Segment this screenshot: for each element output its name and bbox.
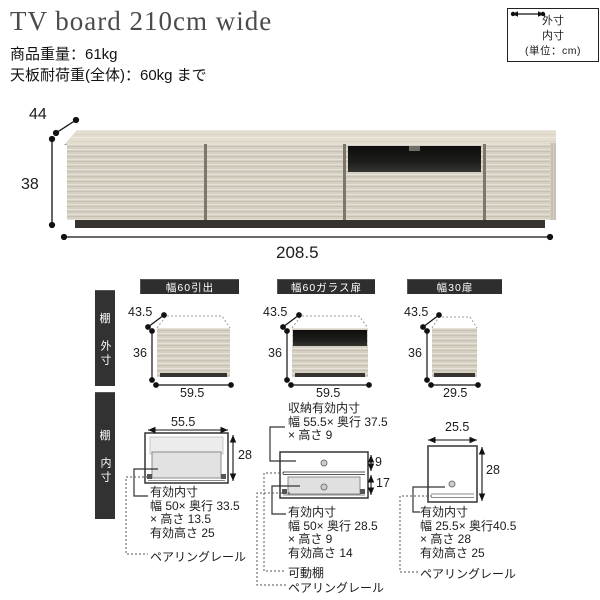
glass-door-latch <box>409 146 420 151</box>
diagram2-rail-label: ペアリングレール <box>288 579 384 596</box>
module2-top-outline <box>292 316 368 328</box>
diagram2-notes: 有効内寸 幅 50× 奥行 28.5 × 高さ 9 有効高さ 14 <box>288 506 378 560</box>
note-line: 有効内寸 <box>150 486 240 500</box>
diagram2-leader-shelf <box>264 473 286 571</box>
bar-inner-label: 内寸 <box>97 457 113 485</box>
diagram3-rail-label: ペアリングレール <box>420 565 516 582</box>
rail-mark <box>147 474 152 479</box>
module2-glass <box>293 330 367 346</box>
module2-base <box>295 373 365 377</box>
tvboard-side-panel <box>550 143 556 220</box>
module3-height: 36 <box>408 346 422 360</box>
module3-top-outline <box>432 317 477 328</box>
sidebar-shelf-inner: 棚 内寸 <box>95 392 115 519</box>
product-dimension-sheet: TV board 210cm wide 商品重量：61kg 天板耐荷重(全体)：… <box>0 0 600 600</box>
legend-unit: (単位：cm) <box>525 43 581 58</box>
cam-screw-icon <box>321 460 327 466</box>
diagram2-drawer-box <box>288 477 360 494</box>
module1-outer-body <box>157 328 230 377</box>
module3-base <box>434 373 475 377</box>
note-line: 有効内寸 <box>288 506 378 520</box>
diagram3-inner-height: 28 <box>486 463 500 477</box>
legend-outer-row: 外寸 <box>542 13 564 27</box>
product-weight: 商品重量：61kg <box>10 43 118 64</box>
tvboard-glass-opening <box>348 146 481 172</box>
tvboard-top-panel <box>64 130 556 145</box>
note-line: 幅 50× 奥行 33.5 <box>150 500 240 514</box>
diagram1-inner-height: 28 <box>238 448 252 462</box>
tvboard-center-section <box>346 144 483 220</box>
module-badge-door: 幅30扉 <box>407 279 502 294</box>
diagram3-inner-width: 25.5 <box>445 420 469 434</box>
rail-mark <box>360 489 365 494</box>
note-line: 幅 55.5× 奥行 37.5 <box>288 416 388 430</box>
main-width-value: 208.5 <box>276 243 319 263</box>
module3-outer-body <box>432 328 477 377</box>
diagram2-leader-rail <box>257 493 290 585</box>
module3-depth: 43.5 <box>404 305 428 319</box>
module1-height: 36 <box>133 346 147 360</box>
note-line: 有効高さ 25 <box>420 547 516 561</box>
diagram1-notes: 有効内寸 幅 50× 奥行 33.5 × 高さ 13.5 有効高さ 25 <box>150 486 240 540</box>
module1-width: 59.5 <box>180 386 204 400</box>
page-title: TV board 210cm wide <box>10 6 272 37</box>
module1-base <box>160 373 227 377</box>
diagram2-box <box>280 452 368 498</box>
dimension-legend: 外寸 内寸 (単位：cm) <box>507 8 599 62</box>
note-line: × 高さ 28 <box>420 533 516 547</box>
sidebar-shelf-outer: 棚 外寸 <box>95 290 115 386</box>
note-line: 有効高さ 25 <box>150 527 240 541</box>
legend-inner-label: 内寸 <box>542 27 564 43</box>
main-depth-value: 44 <box>29 106 47 124</box>
tvboard-front <box>67 144 550 220</box>
legend-outer-label: 外寸 <box>542 12 564 28</box>
note-line: × 高さ 9 <box>288 429 388 443</box>
diagram1-inner-width: 55.5 <box>171 415 195 429</box>
module1-top-outline <box>157 316 230 328</box>
module-badge-drawer: 幅60引出 <box>140 279 239 294</box>
bar-group-label: 棚 <box>100 427 111 443</box>
tvboard-drawer-left <box>67 144 204 220</box>
module2-height: 36 <box>268 346 282 360</box>
diagram1-rail-label: ペアリングレール <box>150 548 246 565</box>
diagram1-leader-dotted <box>126 477 152 554</box>
module1-depth: 43.5 <box>128 305 152 319</box>
tvboard-door-right <box>486 144 550 220</box>
diagram3-box <box>428 446 477 502</box>
note-line: 有効高さ 14 <box>288 547 378 561</box>
rail-mark <box>221 474 226 479</box>
bar-outer-label: 外寸 <box>97 340 113 368</box>
tvboard-base-plinth <box>75 220 545 228</box>
bar-group-label: 棚 <box>100 310 111 326</box>
load-capacity: 天板耐荷重(全体)：60kg まで <box>10 64 207 85</box>
rail-mark <box>282 489 287 494</box>
module2-depth: 43.5 <box>263 305 287 319</box>
diagram2-storage-notes: 収納有効内寸 幅 55.5× 奥行 37.5 × 高さ 9 <box>288 402 388 443</box>
diagram3-notes: 有効内寸 幅 25.5× 奥行40.5 × 高さ 28 有効高さ 25 <box>420 506 516 560</box>
note-line: 有効内寸 <box>420 506 516 520</box>
module-badge-glassdoor: 幅60ガラス扉 <box>277 279 375 294</box>
note-line: 幅 50× 奥行 28.5 <box>288 520 378 534</box>
diagram1-box <box>145 433 228 483</box>
diagram2-lower-height: 17 <box>376 476 390 490</box>
note-line: × 高さ 9 <box>288 533 378 547</box>
note-line: 幅 25.5× 奥行40.5 <box>420 520 516 534</box>
diagram2-upper-height: 9 <box>375 455 382 469</box>
main-depth-line <box>56 120 76 133</box>
cam-screw-icon <box>449 481 455 487</box>
cam-screw-icon <box>321 484 327 490</box>
legend-inner-row: 内寸 <box>542 28 564 42</box>
module2-outer-body <box>292 328 368 377</box>
main-height-value: 38 <box>21 176 39 194</box>
note-line: × 高さ 13.5 <box>150 513 240 527</box>
note-line: 収納有効内寸 <box>288 402 388 416</box>
module3-width: 29.5 <box>443 386 467 400</box>
module2-width: 59.5 <box>316 386 340 400</box>
diagram1-drawer-box <box>152 452 221 478</box>
tvboard-drawer-left2 <box>207 144 343 220</box>
